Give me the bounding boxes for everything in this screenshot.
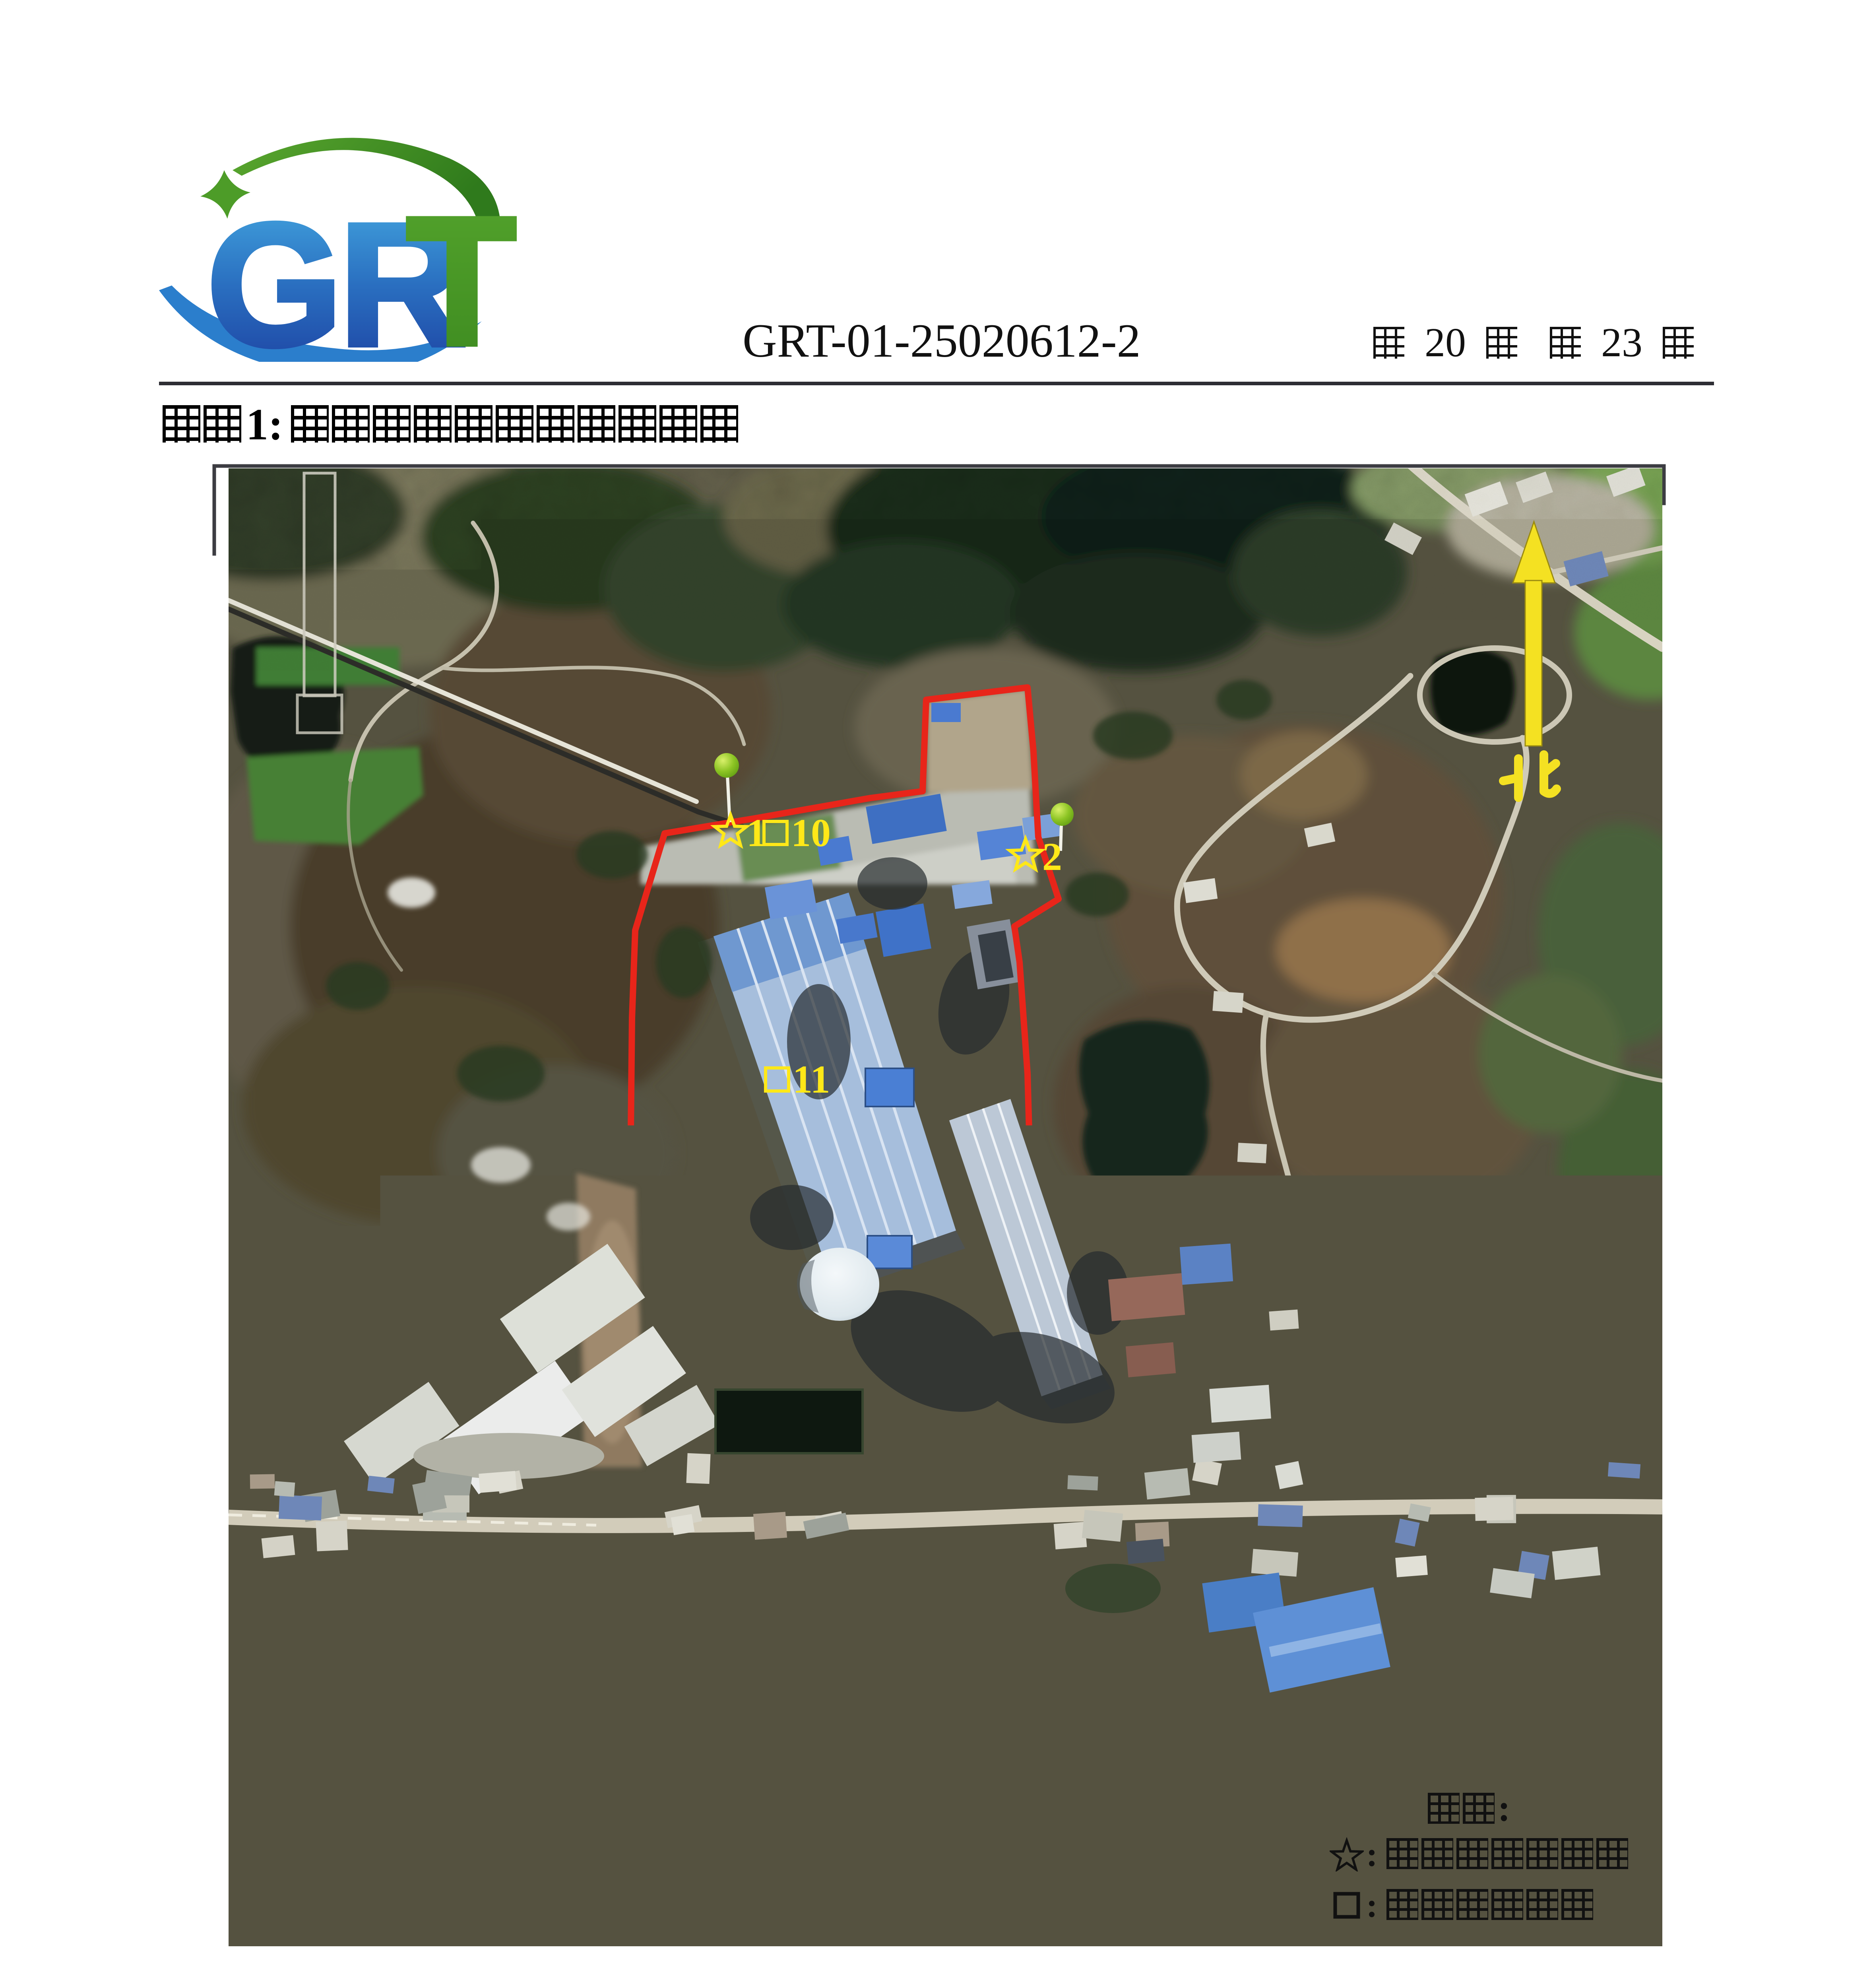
svg-text:3: 3 <box>836 1426 856 1470</box>
svg-text:200: 200 <box>260 1897 325 1938</box>
svg-text:2: 2 <box>1042 835 1062 879</box>
svg-text:10: 10 <box>791 811 831 855</box>
svg-text:11: 11 <box>793 1057 830 1101</box>
svg-text:5: 5 <box>820 1242 840 1286</box>
svg-text:8: 8 <box>907 1448 927 1493</box>
svg-text:9: 9 <box>664 1272 684 1316</box>
svg-text:6: 6 <box>752 1238 772 1282</box>
svg-text:7: 7 <box>1016 1126 1036 1170</box>
